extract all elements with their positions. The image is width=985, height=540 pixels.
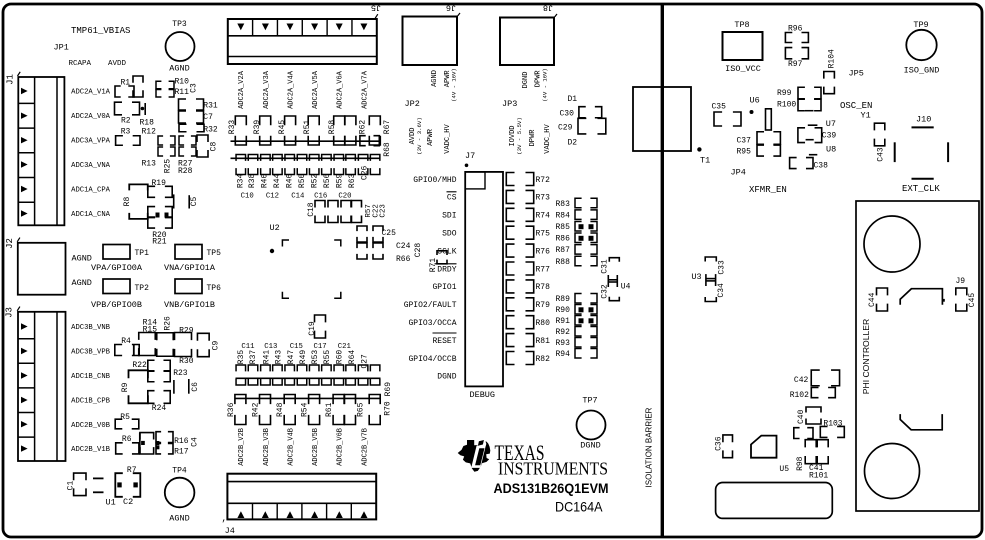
svg-text:R73: R73: [536, 194, 551, 203]
svg-text:J2: J2: [5, 238, 15, 249]
svg-text:R42: R42: [252, 402, 261, 417]
svg-text:R98: R98: [796, 456, 805, 471]
svg-text:R76: R76: [536, 247, 551, 256]
svg-text:R52: R52: [311, 174, 320, 189]
svg-text:U3: U3: [691, 272, 701, 282]
svg-text:VNB/GPIO1B: VNB/GPIO1B: [164, 300, 215, 310]
svg-text:J10: J10: [916, 115, 931, 125]
svg-text:R44: R44: [273, 174, 282, 189]
svg-text:C8: C8: [209, 142, 218, 152]
svg-text:R67: R67: [383, 120, 392, 135]
svg-text:R92: R92: [556, 328, 571, 337]
svg-text:JP5: JP5: [849, 69, 864, 79]
svg-text:R102: R102: [790, 391, 809, 400]
svg-text:R13: R13: [142, 159, 157, 168]
svg-text:R50: R50: [298, 174, 307, 189]
svg-text:R79: R79: [536, 301, 551, 310]
svg-text:ADC2B_V4B: ADC2B_V4B: [287, 428, 295, 466]
svg-text:GPIO3/OCCA: GPIO3/OCCA: [408, 319, 456, 328]
svg-text:T1: T1: [700, 156, 710, 166]
svg-text:ADC2B_V1B: ADC2B_V1B: [71, 446, 111, 454]
svg-text:R104: R104: [828, 49, 837, 68]
svg-text:R36: R36: [227, 402, 236, 417]
svg-text:R10: R10: [175, 78, 190, 87]
svg-text:RESET: RESET: [432, 337, 456, 346]
svg-text:R90: R90: [556, 306, 571, 315]
svg-text:C25: C25: [382, 229, 397, 238]
svg-text:GPIO2/FAULT: GPIO2/FAULT: [404, 301, 457, 310]
svg-text:ADC1B_CPB: ADC1B_CPB: [71, 398, 111, 406]
svg-text:GPIO4/OCCB: GPIO4/OCCB: [408, 355, 456, 364]
svg-text:EXT_CLK: EXT_CLK: [902, 184, 940, 194]
svg-text:PHI CONTROLLER: PHI CONTROLLER: [861, 319, 871, 394]
svg-text:VADC_HV: VADC_HV: [444, 123, 452, 153]
svg-text:ADC2A_V7A: ADC2A_V7A: [361, 70, 369, 109]
svg-text:R83: R83: [556, 200, 571, 209]
svg-text:R31: R31: [203, 102, 218, 111]
svg-text:CS: CS: [447, 194, 457, 203]
svg-text:R40: R40: [261, 174, 270, 189]
svg-text:(3V - 5.5V): (3V - 5.5V): [516, 117, 523, 155]
svg-text:R63: R63: [348, 174, 357, 189]
svg-text:DGND: DGND: [580, 441, 600, 451]
svg-text:C20: C20: [338, 193, 351, 201]
svg-text:R5: R5: [120, 413, 130, 422]
svg-text:R37: R37: [249, 350, 258, 365]
svg-text:C14: C14: [291, 193, 305, 201]
svg-text:GPIO0/MHD: GPIO0/MHD: [413, 176, 456, 185]
svg-text:R35: R35: [237, 350, 246, 365]
svg-text:C31: C31: [600, 259, 609, 274]
svg-text:R25: R25: [163, 159, 172, 174]
svg-text:ADC2B_V2B: ADC2B_V2B: [238, 428, 246, 466]
svg-text:RCAPA: RCAPA: [69, 60, 92, 68]
svg-text:D2: D2: [568, 139, 578, 148]
svg-text:R38: R38: [248, 174, 257, 189]
svg-text:GPIO1: GPIO1: [432, 283, 456, 292]
svg-text:C16: C16: [314, 193, 327, 201]
svg-text:C44: C44: [868, 292, 877, 307]
svg-text:R88: R88: [556, 258, 571, 267]
svg-text:DPWR: DPWR: [529, 129, 537, 147]
svg-text:R66: R66: [396, 255, 411, 264]
svg-text:R9: R9: [121, 382, 130, 392]
svg-text:R34: R34: [237, 174, 246, 189]
svg-text:R72: R72: [536, 176, 551, 185]
svg-text:VPA/GPIO0A: VPA/GPIO0A: [91, 263, 143, 273]
svg-text:VADC_HV: VADC_HV: [544, 123, 552, 153]
svg-text:R21: R21: [152, 238, 167, 247]
svg-text:JP2: JP2: [405, 99, 420, 109]
svg-text:ADC2A_V4A: ADC2A_V4A: [287, 70, 295, 109]
svg-text:C12: C12: [266, 193, 279, 201]
svg-text:JP4: JP4: [731, 168, 746, 178]
svg-text:R61: R61: [325, 402, 334, 417]
svg-text:TP2: TP2: [135, 284, 150, 293]
svg-text:R68: R68: [383, 142, 392, 157]
svg-text:C45: C45: [968, 293, 977, 308]
svg-text:AGND: AGND: [169, 514, 189, 524]
svg-text:R56: R56: [323, 174, 332, 189]
svg-text:ADC3B_VNB: ADC3B_VNB: [71, 324, 111, 332]
svg-text:AGND: AGND: [431, 70, 439, 87]
svg-text:INSTRUMENTS: INSTRUMENTS: [498, 459, 608, 479]
svg-text:C5: C5: [190, 197, 199, 207]
svg-text:R22: R22: [132, 361, 147, 370]
svg-text:ADC3A_VPA: ADC3A_VPA: [71, 138, 111, 146]
svg-text:ADC2B_V6B: ADC2B_V6B: [337, 428, 345, 466]
svg-text:ADC2A_V5A: ADC2A_V5A: [312, 70, 320, 109]
svg-text:R55: R55: [323, 350, 332, 365]
svg-text:R95: R95: [737, 148, 752, 157]
svg-text:C29: C29: [558, 124, 573, 133]
svg-text:R99: R99: [777, 89, 792, 98]
svg-text:ISO_GND: ISO_GND: [904, 66, 940, 76]
svg-text:AGND: AGND: [169, 63, 189, 73]
svg-text:XFMR_EN: XFMR_EN: [749, 185, 787, 195]
svg-text:C7: C7: [203, 113, 213, 122]
svg-text:C40: C40: [797, 409, 806, 424]
svg-text:J7: J7: [465, 151, 475, 161]
svg-text:R53: R53: [311, 350, 320, 365]
svg-text:J9: J9: [956, 277, 966, 286]
svg-text:C33: C33: [718, 260, 727, 275]
svg-text:C6: C6: [191, 382, 200, 392]
svg-text:U2: U2: [270, 223, 280, 233]
svg-text:R8: R8: [123, 197, 132, 207]
svg-text:C38: C38: [814, 162, 829, 171]
svg-text:R46: R46: [285, 174, 294, 189]
svg-text:J5: J5: [371, 3, 381, 13]
svg-text:ISOLATION BARRIER: ISOLATION BARRIER: [644, 407, 653, 487]
svg-text:ADC2A_V0A: ADC2A_V0A: [71, 113, 111, 121]
svg-text:R2: R2: [121, 117, 131, 126]
svg-text:DGND: DGND: [522, 72, 530, 89]
svg-text:ADC2B_V7B: ADC2B_V7B: [361, 428, 369, 466]
svg-text:ADC2A_V1A: ADC2A_V1A: [71, 89, 111, 97]
svg-text:SDI: SDI: [442, 212, 456, 221]
svg-text:C19: C19: [308, 321, 317, 336]
svg-text:R80: R80: [536, 319, 551, 328]
svg-text:R26: R26: [164, 316, 173, 331]
svg-text:TP4: TP4: [172, 466, 187, 475]
svg-text:R47: R47: [287, 350, 296, 365]
svg-text:JP1: JP1: [54, 43, 69, 53]
svg-text:ADC2A_V3A: ADC2A_V3A: [263, 70, 271, 109]
svg-text:C35: C35: [712, 103, 727, 112]
svg-text:R60: R60: [336, 350, 345, 365]
svg-text:(4V - 16V): (4V - 16V): [541, 68, 548, 102]
svg-text:,: ,: [222, 514, 227, 524]
svg-text:R48: R48: [276, 402, 285, 417]
svg-text:U5: U5: [779, 465, 789, 474]
svg-text:C10: C10: [241, 193, 254, 201]
svg-text:R45: R45: [278, 120, 287, 135]
svg-text:ADC1A_CNA: ADC1A_CNA: [71, 211, 111, 219]
svg-text:VPB/GPIO0B: VPB/GPIO0B: [91, 300, 142, 310]
svg-text:J3: J3: [5, 307, 15, 318]
svg-text:U1: U1: [106, 498, 116, 508]
svg-text:C27: C27: [360, 354, 369, 369]
svg-text:R64: R64: [348, 350, 357, 365]
svg-text:R70: R70: [384, 401, 393, 416]
svg-text:C42: C42: [794, 376, 809, 385]
svg-text:R41: R41: [262, 350, 271, 365]
svg-text:C28: C28: [414, 243, 423, 258]
svg-text:TP8: TP8: [734, 20, 749, 30]
svg-text:TP6: TP6: [207, 284, 222, 293]
svg-text:R100: R100: [777, 101, 796, 110]
svg-text:C23: C23: [380, 204, 388, 218]
svg-text:ADC1B_CNB: ADC1B_CNB: [71, 373, 111, 381]
svg-text:R17: R17: [174, 447, 189, 456]
svg-text:R62: R62: [359, 120, 368, 135]
svg-text:R54: R54: [300, 402, 309, 417]
svg-text:(3V - 3.6V): (3V - 3.6V): [416, 117, 423, 155]
svg-text:R87: R87: [556, 246, 571, 255]
svg-text:AGND: AGND: [72, 253, 92, 263]
svg-text:TP3: TP3: [172, 20, 187, 29]
svg-text:R28: R28: [178, 167, 193, 176]
svg-text:J8: J8: [543, 3, 553, 13]
svg-text:R33: R33: [228, 120, 237, 135]
svg-text:R97: R97: [788, 60, 803, 69]
svg-text:R91: R91: [556, 317, 571, 326]
svg-text:DRDY: DRDY: [437, 265, 456, 274]
svg-text:(4V - 16V): (4V - 16V): [450, 68, 457, 102]
svg-text:R69: R69: [384, 382, 393, 397]
svg-text:C1: C1: [66, 481, 75, 491]
svg-text:R74: R74: [536, 212, 551, 221]
svg-text:TP5: TP5: [207, 249, 222, 258]
svg-text:R23: R23: [173, 369, 188, 378]
svg-text:ADC2A_V6A: ADC2A_V6A: [337, 70, 345, 109]
svg-text:R59: R59: [336, 174, 345, 189]
svg-text:R94: R94: [556, 350, 571, 359]
svg-text:ISO_VCC: ISO_VCC: [725, 64, 761, 74]
svg-text:U4: U4: [621, 282, 631, 291]
svg-text:R81: R81: [536, 337, 551, 346]
svg-text:R43: R43: [275, 350, 284, 365]
svg-text:R82: R82: [536, 355, 551, 364]
svg-text:R84: R84: [556, 211, 571, 220]
svg-text:R24: R24: [152, 404, 167, 413]
svg-text:R85: R85: [556, 223, 571, 232]
svg-text:R51: R51: [303, 120, 312, 135]
svg-text:C39: C39: [822, 132, 837, 141]
svg-text:R77: R77: [536, 265, 551, 274]
svg-text:C2: C2: [123, 497, 133, 507]
svg-text:C30: C30: [560, 110, 575, 119]
svg-text:R11: R11: [175, 88, 190, 97]
svg-text:R32: R32: [203, 126, 218, 135]
svg-text:C9: C9: [211, 341, 220, 351]
svg-text:AVDD: AVDD: [108, 60, 127, 68]
svg-text:R16: R16: [174, 437, 189, 446]
svg-text:C43: C43: [877, 147, 886, 162]
svg-text:JP3: JP3: [502, 99, 517, 109]
svg-text:C3: C3: [189, 83, 198, 93]
svg-text:R65: R65: [357, 402, 366, 417]
svg-text:R101: R101: [809, 472, 828, 481]
svg-text:R39: R39: [253, 120, 262, 135]
svg-text:R18: R18: [140, 119, 155, 128]
svg-text:SDO: SDO: [442, 230, 457, 239]
svg-text:D1: D1: [568, 95, 578, 104]
svg-text:TMP61_VBIAS: TMP61_VBIAS: [71, 26, 130, 36]
svg-text:ADC2A_V2A: ADC2A_V2A: [238, 70, 246, 109]
svg-text:C26: C26: [360, 166, 369, 181]
svg-text:R30: R30: [179, 357, 194, 366]
svg-text:U8: U8: [826, 145, 836, 155]
svg-text:DGND: DGND: [437, 373, 456, 382]
svg-text:U6: U6: [750, 96, 760, 106]
svg-text:R86: R86: [556, 235, 571, 244]
svg-text:TP7: TP7: [582, 396, 597, 406]
svg-text:C37: C37: [737, 137, 752, 146]
svg-text:TP9: TP9: [913, 20, 928, 30]
svg-text:R78: R78: [536, 283, 551, 292]
svg-text:C24: C24: [396, 242, 411, 251]
svg-text:R58: R58: [328, 120, 337, 135]
svg-text:R75: R75: [536, 230, 551, 239]
svg-text:R89: R89: [556, 295, 571, 304]
svg-text:ADC3A_VNA: ADC3A_VNA: [71, 162, 111, 170]
svg-text:ADC1A_CPA: ADC1A_CPA: [71, 187, 111, 195]
svg-text:OSC_EN: OSC_EN: [840, 101, 872, 111]
svg-text:AGND: AGND: [72, 278, 92, 288]
svg-text:R6: R6: [122, 435, 132, 444]
svg-text:R12: R12: [142, 127, 157, 136]
svg-text:J6: J6: [446, 3, 456, 13]
svg-text:J1: J1: [6, 74, 16, 85]
svg-text:APWR: APWR: [427, 128, 435, 146]
svg-text:C34: C34: [717, 283, 726, 298]
svg-text:DEBUG: DEBUG: [470, 390, 496, 400]
svg-text:R49: R49: [299, 350, 308, 365]
svg-text:DC164A: DC164A: [555, 498, 603, 514]
svg-text:C4: C4: [190, 437, 199, 447]
svg-text:U7: U7: [826, 119, 836, 129]
svg-text:R4: R4: [121, 337, 131, 346]
svg-text:J4: J4: [225, 526, 235, 536]
svg-text:ADC2B_V5B: ADC2B_V5B: [312, 428, 320, 466]
svg-text:Y1: Y1: [861, 111, 871, 121]
svg-text:VNA/GPIO1A: VNA/GPIO1A: [164, 263, 216, 273]
svg-text:ADC2B_V3B: ADC2B_V3B: [263, 428, 271, 466]
svg-text:ADC2B_V0B: ADC2B_V0B: [71, 422, 111, 430]
svg-text:R93: R93: [556, 339, 571, 348]
svg-text:ADS131B26Q1EVM: ADS131B26Q1EVM: [494, 480, 609, 496]
svg-text:ADC3B_VPB: ADC3B_VPB: [71, 349, 111, 357]
svg-text:TP1: TP1: [135, 249, 150, 258]
